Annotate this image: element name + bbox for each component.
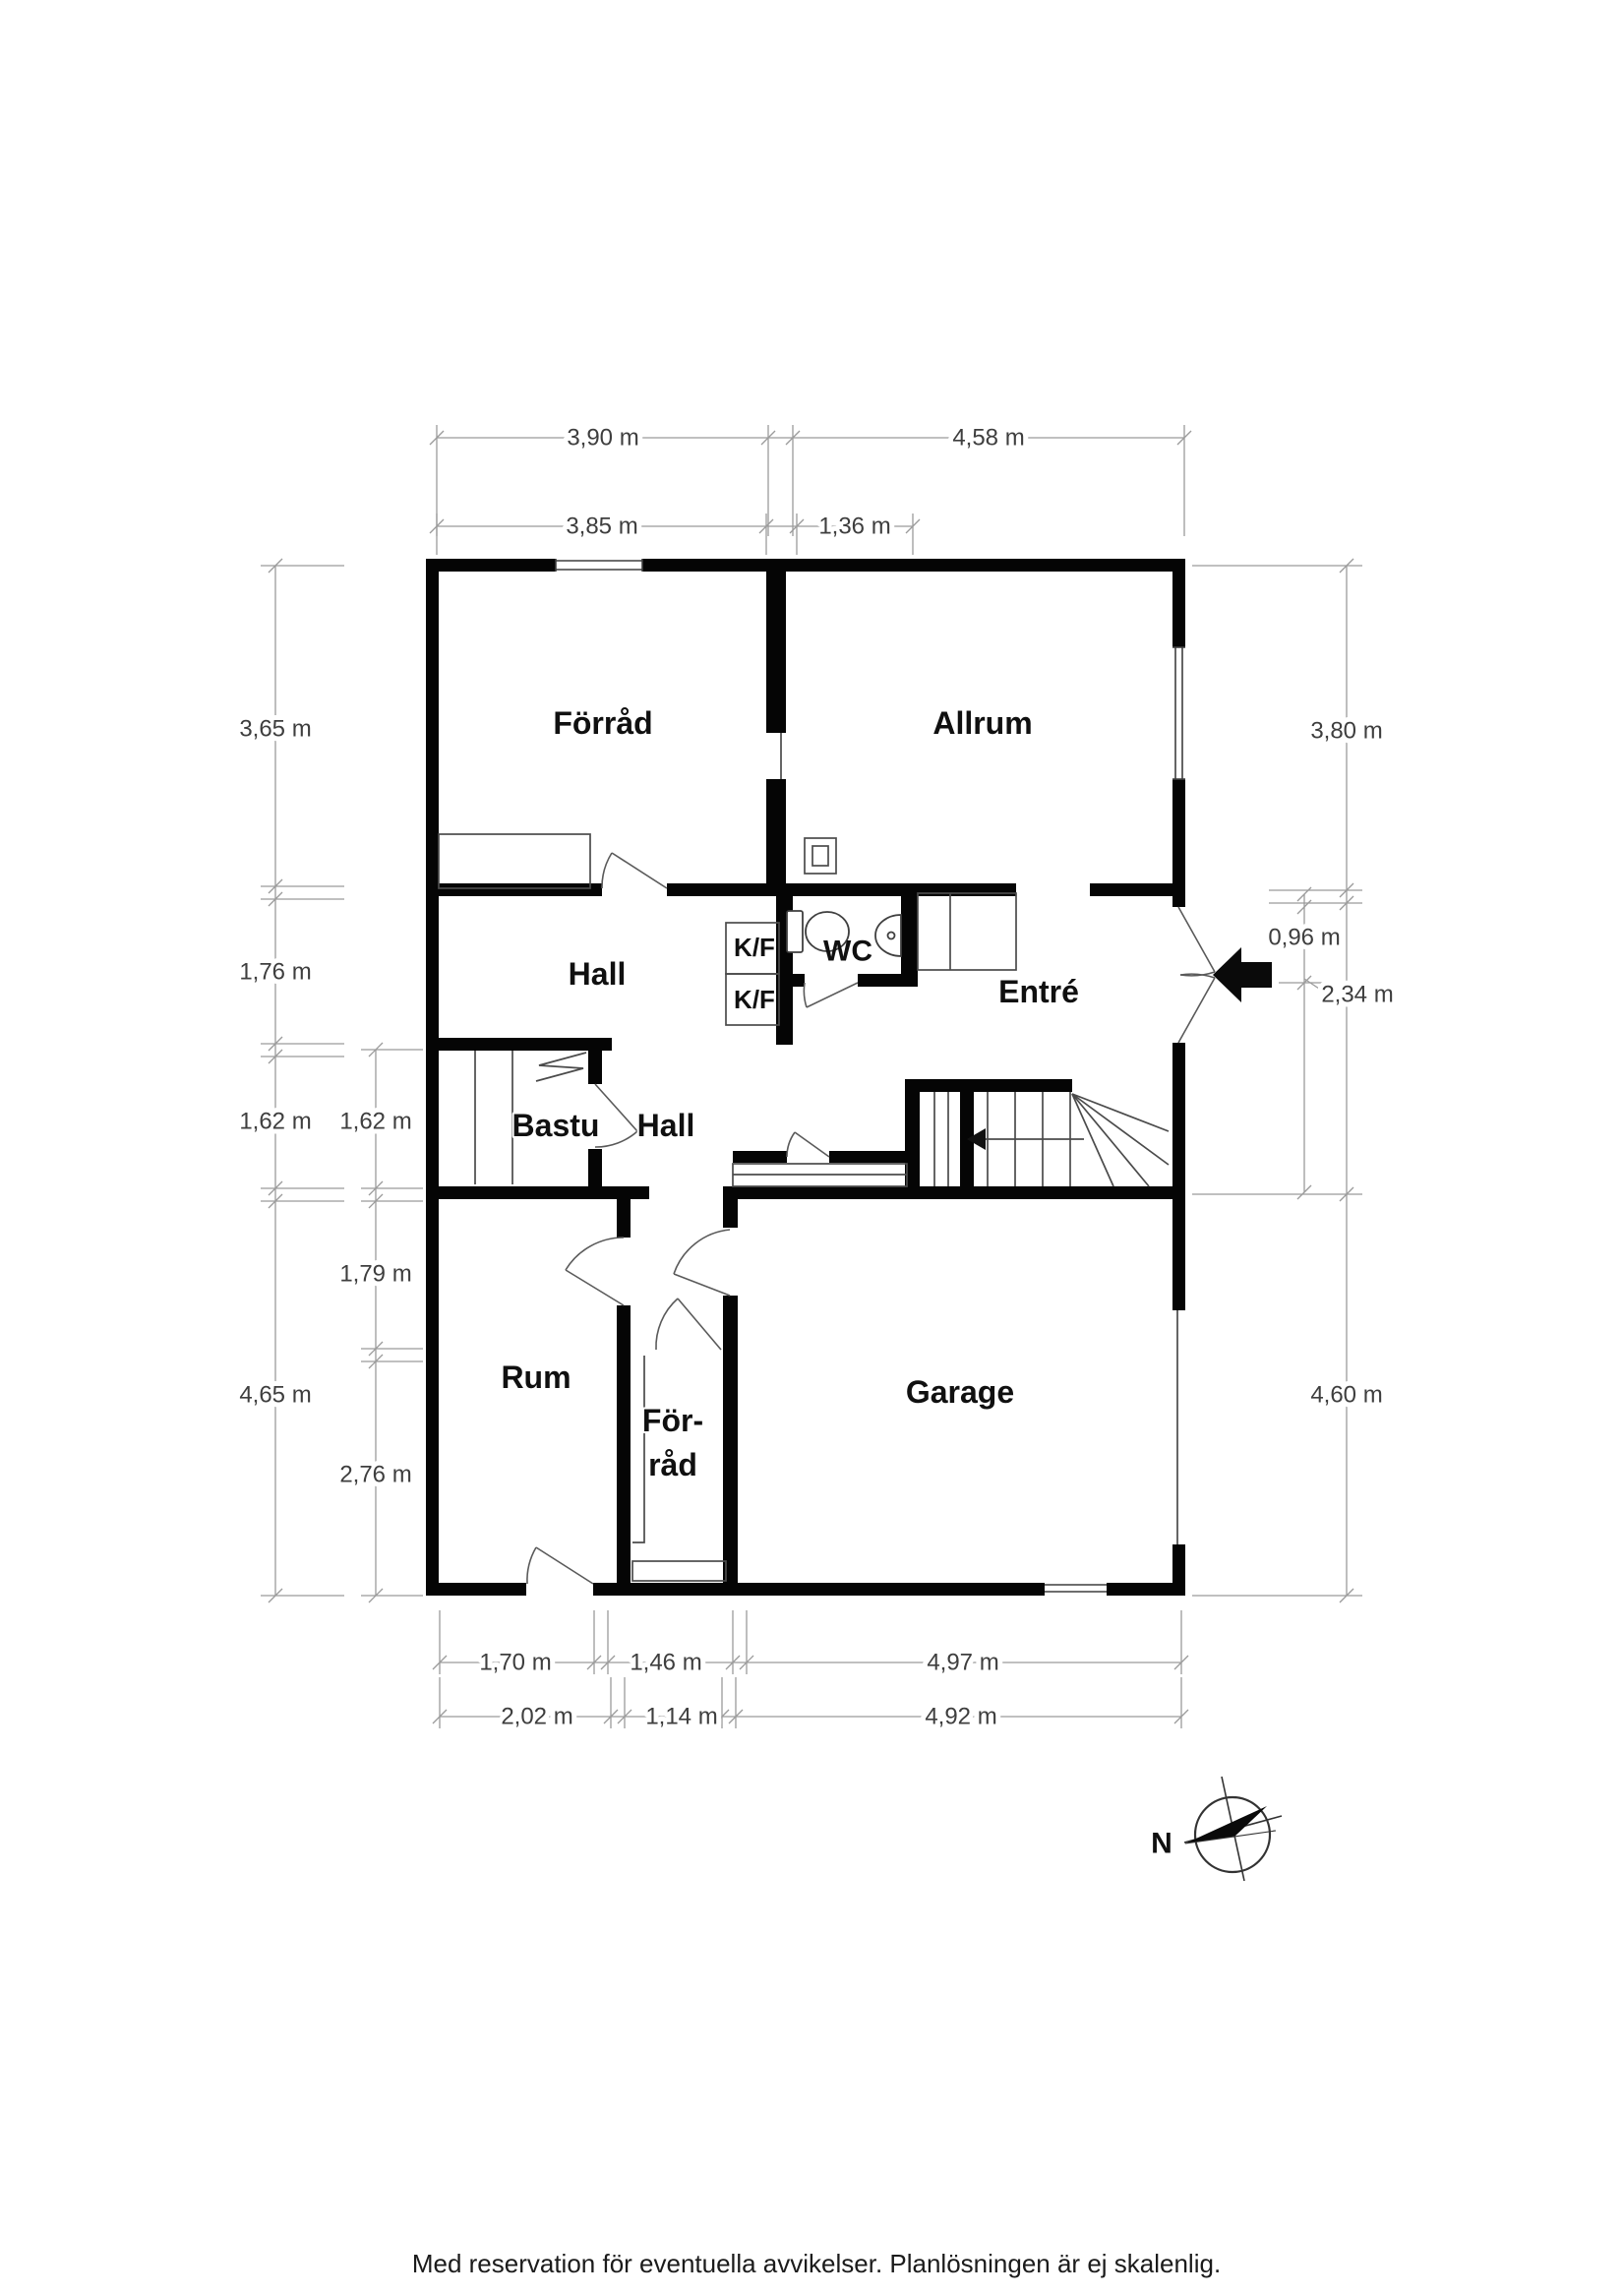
dimensions-right: 3,80 m 0,96 m 2,34 m 4,60 m xyxy=(1192,559,1394,1602)
room-label-hall-lower: Hall xyxy=(637,1108,695,1143)
sauna-bench-icon xyxy=(475,1051,512,1184)
dim-right-096: 0,96 m xyxy=(1268,925,1340,951)
label-kf-top: K/F xyxy=(734,933,775,962)
floorplan-canvas: 3,90 m 4,58 m 3,85 m 1,36 m 3,65 m 1,76 … xyxy=(0,0,1623,2296)
closet-entre-icon xyxy=(918,893,1016,970)
room-labels: Förråd Allrum Hall K/F K/F WC Entré Bast… xyxy=(501,705,1078,1482)
sauna-heater-icon xyxy=(536,1053,586,1081)
dim-top-458: 4,58 m xyxy=(952,425,1024,452)
walls xyxy=(426,559,1185,1596)
door-garage-icon xyxy=(674,1230,730,1296)
room-label-allrum: Allrum xyxy=(932,705,1032,741)
chimney-icon xyxy=(805,838,836,874)
closet-hall-icon xyxy=(733,1164,907,1186)
dim-bottom-492: 4,92 m xyxy=(925,1704,996,1730)
dim-left-162-inner: 1,62 m xyxy=(339,1109,411,1135)
floorplan-page: 3,90 m 4,58 m 3,85 m 1,36 m 3,65 m 1,76 … xyxy=(0,0,1623,2296)
sink-icon xyxy=(875,915,901,956)
dim-top-390: 3,90 m xyxy=(567,425,638,452)
dim-left-162-outer: 1,62 m xyxy=(239,1109,311,1135)
entrance-arrow-icon xyxy=(1213,947,1272,1002)
closet-forrad-icon xyxy=(439,834,590,888)
dim-right-380: 3,80 m xyxy=(1310,718,1382,745)
dim-bottom-114: 1,14 m xyxy=(645,1704,717,1730)
room-label-entre: Entré xyxy=(998,974,1079,1009)
door-wc-icon xyxy=(804,983,858,1007)
window-forrad-top-icon xyxy=(556,559,642,572)
compass-north-label: N xyxy=(1151,1828,1172,1860)
dim-left-176: 1,76 m xyxy=(239,959,311,986)
footer-disclaimer: Med reservation för eventuella avvikelse… xyxy=(412,2249,1221,2278)
room-label-garage: Garage xyxy=(906,1374,1014,1410)
dim-bottom-202: 2,02 m xyxy=(501,1704,572,1730)
dim-right-234: 2,34 m xyxy=(1321,982,1393,1008)
door-forrad-lower-icon xyxy=(656,1299,721,1350)
room-label-wc: WC xyxy=(823,936,872,968)
door-bastu-icon xyxy=(595,1084,637,1147)
stairs-direction-arrow-icon xyxy=(967,1128,1084,1150)
dim-bottom-146: 1,46 m xyxy=(630,1650,701,1676)
room-label-bastu: Bastu xyxy=(512,1108,600,1143)
compass-icon: N xyxy=(1151,1777,1282,1881)
room-label-rum: Rum xyxy=(501,1359,571,1395)
room-label-forrad-lower-2: råd xyxy=(648,1447,697,1482)
dim-left-179: 1,79 m xyxy=(339,1261,411,1288)
room-label-forrad-top: Förråd xyxy=(553,705,652,741)
dim-left-276: 2,76 m xyxy=(339,1462,411,1488)
entry-double-door-icon xyxy=(1178,907,1215,1043)
window-allrum-right-icon xyxy=(1172,647,1185,779)
door-rum-icon xyxy=(566,1238,624,1305)
dim-top-136: 1,36 m xyxy=(818,514,890,540)
room-label-hall-upper: Hall xyxy=(569,956,627,992)
dim-left-465: 4,65 m xyxy=(239,1382,311,1409)
door-forrad-top-icon xyxy=(602,853,667,888)
dim-right-460: 4,60 m xyxy=(1310,1382,1382,1409)
dim-left-365: 3,65 m xyxy=(239,716,311,743)
dimensions-bottom: 1,70 m 1,46 m 4,97 m 2,02 m 1,14 m 4,92 … xyxy=(433,1610,1188,1730)
door-hall-closet-icon xyxy=(787,1132,829,1157)
room-label-forrad-lower-1: För- xyxy=(642,1403,703,1438)
door-rum-exterior-icon xyxy=(527,1547,593,1584)
dim-bottom-497: 4,97 m xyxy=(927,1650,998,1676)
dimensions-top: 3,90 m 4,58 m 3,85 m 1,36 m xyxy=(430,425,1191,556)
label-kf-bottom: K/F xyxy=(734,985,775,1014)
window-garage-bottom-icon xyxy=(1045,1585,1107,1592)
dim-bottom-170: 1,70 m xyxy=(479,1650,551,1676)
dimensions-left: 3,65 m 1,76 m 1,62 m 4,65 m 1,62 m 1,79 … xyxy=(239,559,423,1602)
dim-top-385: 3,85 m xyxy=(566,514,637,540)
